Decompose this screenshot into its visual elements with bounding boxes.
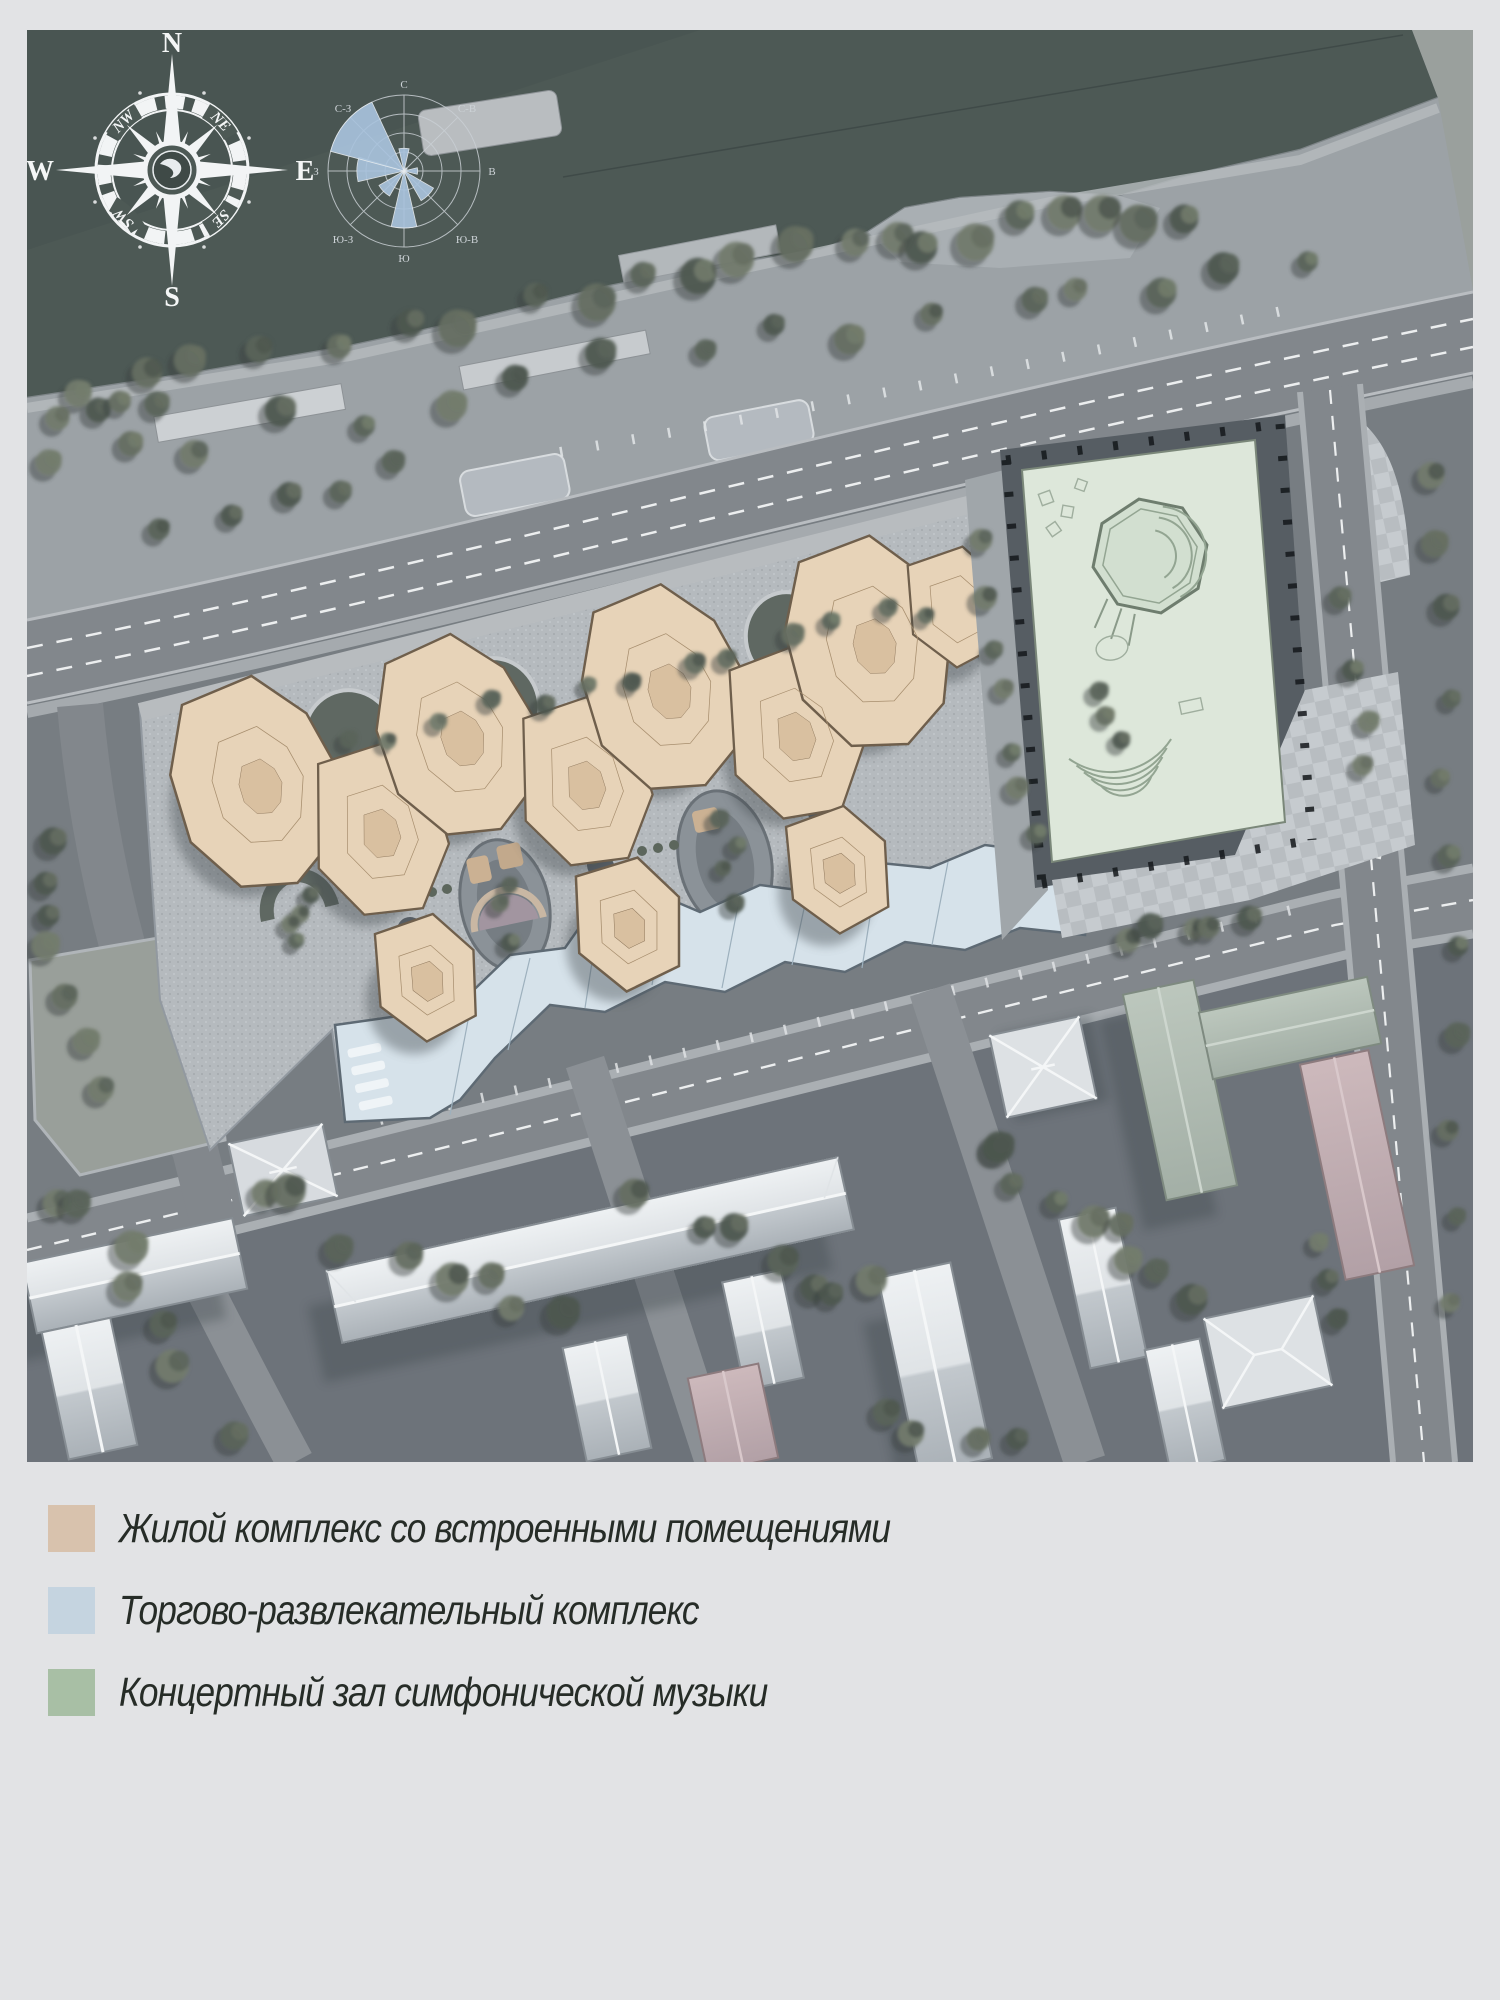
legend-item-concert-hall: Концертный зал симфонической музыки xyxy=(48,1669,873,1716)
hip-house-2 xyxy=(989,1016,1096,1117)
wind-se-label: Ю-В xyxy=(456,234,478,246)
wind-nw-label: С-З xyxy=(335,103,352,115)
retail-swatch xyxy=(48,1587,95,1634)
concert-hall-label: Концертный зал симфонической музыки xyxy=(119,1669,767,1716)
compass-n-label: N xyxy=(162,28,182,59)
wind-w-label: З xyxy=(313,166,319,178)
retail-label: Торгово-развлекательный комплекс xyxy=(119,1587,699,1634)
masterplan-page: NW NE SW SE xyxy=(0,0,1500,2000)
compass-w-label: W xyxy=(26,156,54,187)
concert-hall-swatch xyxy=(48,1669,95,1716)
residential-label: Жилой комплекс со встроенными помещениям… xyxy=(119,1505,890,1552)
residential-swatch xyxy=(48,1505,95,1552)
wind-ne-label: С-В xyxy=(458,103,476,115)
wind-sw-label: Ю-З xyxy=(333,234,354,246)
compass-e-label: E xyxy=(296,156,315,187)
wind-n-label: С xyxy=(400,79,407,91)
wind-s-label: Ю xyxy=(398,253,409,265)
compass-s-label: S xyxy=(164,282,180,313)
wind-e-label: В xyxy=(488,166,495,178)
legend-item-residential: Жилой комплекс со встроенными помещениям… xyxy=(48,1505,1016,1552)
legend-item-retail: Торгово-развлекательный комплекс xyxy=(48,1587,793,1634)
